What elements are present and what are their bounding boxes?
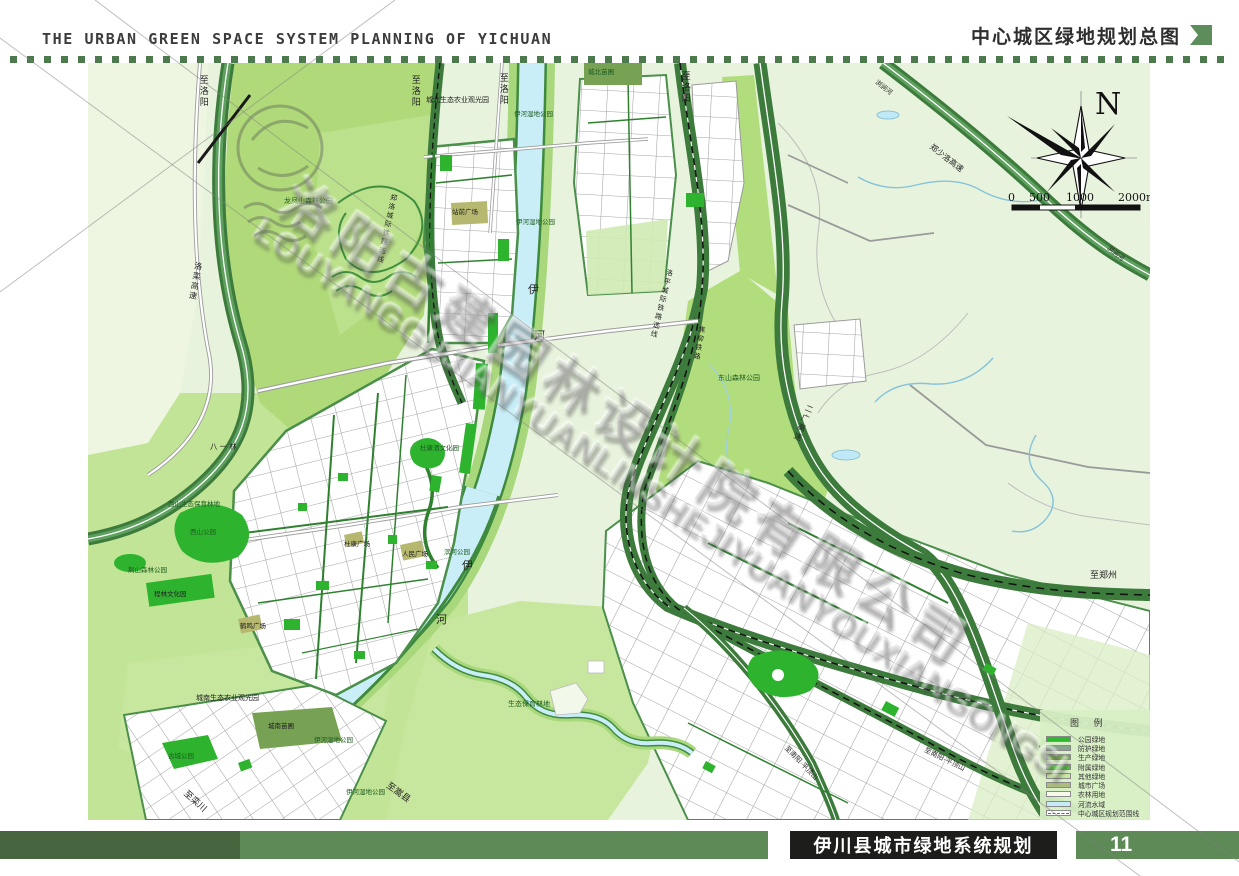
legend-item: 防护绿地 [1046,743,1144,752]
map-label: 荆山森林公园 [128,567,167,574]
map-label: 至南阳·平顶山 [923,747,966,773]
page-title-en: THE URBAN GREEN SPACE SYSTEM PLANNING OF… [42,30,552,48]
footer-bar-dark [0,831,240,859]
map-label: 程林文化园 [154,591,187,598]
map-label: 滨河公园 [444,549,470,556]
map-label: 城南生态农业观光园 [196,695,259,703]
map-label: 伊河湿地公园 [346,789,385,796]
map-label: 浏涧河 [874,79,894,97]
map-label: 至洛阳 [680,71,690,104]
map-label: 西山公园 [190,529,216,536]
map-label: 站前广场 [452,209,478,216]
map-label: 伊河湿地公园 [514,111,553,118]
legend-swatch [1046,791,1071,797]
map-labels: 至洛阳至洛阳至洛阳至洛阳龙凤山森林公园城北苗圃城北生态农业观光园伊河湿地公园郑洛… [88,63,1150,820]
map-label: 郑少洛高速 [928,143,965,174]
legend-swatch [1046,773,1071,779]
map-label: 至郑州 [1090,571,1117,581]
map-label: 至洛阳 [498,73,508,106]
legend-swatch [1046,764,1071,770]
legend-title: 图 例 [1070,716,1144,729]
map-label: 龙凤山森林公园 [284,198,333,206]
legend-swatch-boundary [1046,810,1071,816]
map-label: 河 [534,331,545,343]
legend-item: 公园绿地 [1046,734,1144,743]
map-label: 伊河湿地公园 [314,737,353,744]
legend-swatch [1046,782,1071,788]
map-label: 河 [436,615,447,627]
map-label: 至洛阳 [198,75,208,108]
footer-page-number: 11 [1076,831,1239,859]
map-label: 至南阳·平顶山 [783,745,819,782]
map-label: 鹤鸣广场 [240,623,266,630]
legend-item: 城市广场 [1046,780,1144,789]
map-label: 城北生态农业观光园 [426,97,489,105]
legend: 图 例 公园绿地防护绿地生产绿地附属绿地其他绿地城市广场农林用地河流水域中心城区… [1040,710,1150,820]
legend-swatch [1046,801,1071,807]
map-label: 八 一 林 [210,443,237,451]
legend-item: 中心城区规划范围线 [1046,808,1144,817]
legend-item: 生产绿地 [1046,753,1144,762]
map-label: 伊河湿地公园 [516,219,555,226]
map-label: 焦柳铁路 [692,325,706,362]
legend-item: 其他绿地 [1046,771,1144,780]
footer-title: 伊川县城市绿地系统规划 [790,831,1057,859]
map-label: 洛平城际铁路选线 [649,268,674,340]
map-label: 杜康广场 [344,541,370,548]
legend-swatch [1046,736,1071,742]
map-label: 古城公园 [168,753,194,760]
map-label: 二广高速 [791,403,814,443]
legend-swatch [1046,745,1071,751]
map-label: 东山森林公园 [718,375,760,383]
map-label: 洛栾高速 [187,261,202,302]
legend-item: 河流水域 [1046,799,1144,808]
map-label: 浏涧河 [1106,245,1126,263]
map-label: 至嵩县 [384,781,412,805]
map-label: 城北苗圃 [588,69,614,76]
legend-swatch [1046,754,1071,760]
page: THE URBAN GREEN SPACE SYSTEM PLANNING OF… [0,0,1239,876]
legend-items: 公园绿地防护绿地生产绿地附属绿地其他绿地城市广场农林用地河流水域中心城区规划范围… [1046,734,1144,818]
planning-map: N 0 500 1000 2000m 至洛阳至洛阳至洛阳至洛阳龙凤山森林公园城北… [88,63,1150,820]
legend-item: 附属绿地 [1046,762,1144,771]
map-label: 至栾川 [181,789,208,814]
map-label: 伊 [462,561,473,573]
map-label: 西山生态保育林地 [168,501,220,508]
legend-item: 农林用地 [1046,790,1144,799]
legend-label: 中心城区规划范围线 [1078,808,1139,818]
map-label: 伊 [528,285,539,297]
map-label: 生态保育林地 [508,701,550,709]
header-flag-icon [1187,24,1213,46]
map-label: 郑洛城际铁路选线 [375,193,397,265]
map-label: 至洛阳 [410,75,420,108]
page-title-cn: 中心城区绿地规划总图 [971,22,1181,49]
map-label: 城南苗圃 [268,723,294,730]
map-label: 人民广场 [402,551,428,558]
header-dotted-rule [10,56,1229,63]
footer-bar-green [240,831,768,859]
map-label: 杜康酒文化园 [420,445,459,452]
